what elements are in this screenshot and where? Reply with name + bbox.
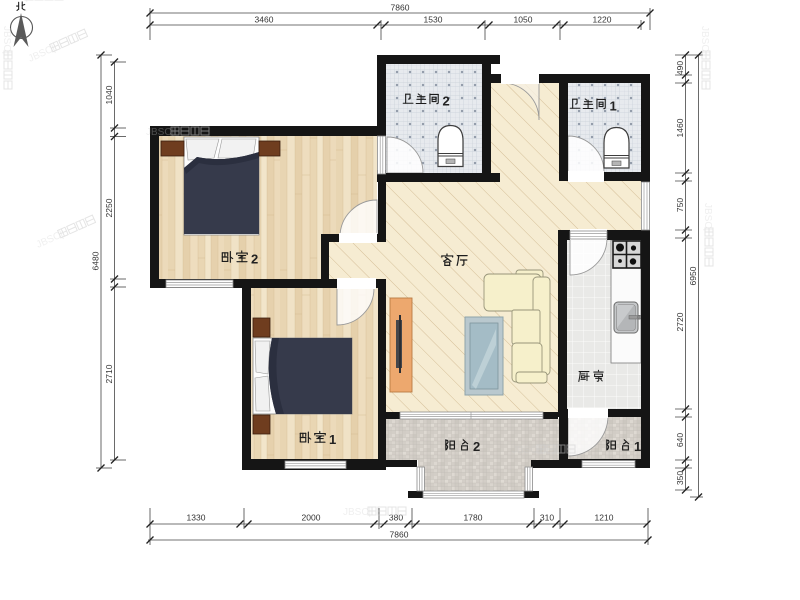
svg-text:6480: 6480 [91, 251, 101, 270]
svg-text:2000: 2000 [302, 513, 321, 523]
svg-text:2: 2 [443, 94, 450, 109]
svg-text:1: 1 [329, 432, 336, 447]
svg-text:490: 490 [675, 61, 685, 75]
svg-text:2250: 2250 [104, 198, 114, 217]
svg-text:1330: 1330 [187, 513, 206, 523]
svg-text:750: 750 [675, 198, 685, 212]
svg-text:1210: 1210 [595, 513, 614, 523]
svg-text:JBSC|: JBSC| [0, 0, 28, 3]
svg-text:2: 2 [251, 252, 258, 267]
svg-text:1: 1 [634, 439, 641, 454]
svg-text:1780: 1780 [464, 513, 483, 523]
svg-text:1: 1 [610, 99, 617, 114]
svg-text:1460: 1460 [675, 118, 685, 137]
svg-text:640: 640 [675, 433, 685, 447]
svg-text:2720: 2720 [675, 312, 685, 331]
svg-text:310: 310 [540, 513, 554, 523]
svg-text:2: 2 [473, 439, 480, 454]
svg-text:350: 350 [675, 471, 685, 485]
svg-text:1050: 1050 [514, 15, 533, 25]
svg-text:1040: 1040 [104, 85, 114, 104]
svg-text:7860: 7860 [390, 530, 409, 540]
svg-text:7860: 7860 [391, 3, 410, 13]
svg-text:2710: 2710 [104, 364, 114, 383]
svg-text:3460: 3460 [255, 15, 274, 25]
svg-text:1530: 1530 [424, 15, 443, 25]
svg-text:1220: 1220 [593, 15, 612, 25]
svg-text:6950: 6950 [688, 266, 698, 285]
